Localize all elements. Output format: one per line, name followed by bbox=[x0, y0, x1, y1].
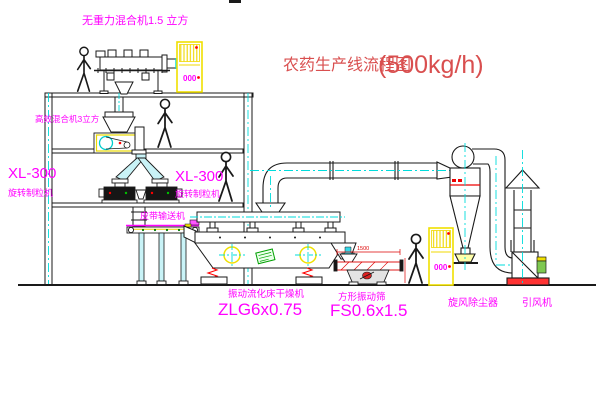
screen-dimension-label: 1500 bbox=[357, 246, 369, 252]
indicator-light bbox=[197, 76, 200, 79]
granulator-mid-name-label: 旋转制粒机 bbox=[175, 188, 220, 199]
drawing-title-capacity: (500kg/h) bbox=[378, 51, 484, 79]
clipped-artifact bbox=[229, 0, 241, 3]
indicator-light bbox=[195, 46, 198, 49]
indicator-light bbox=[447, 232, 450, 235]
gravity-mixer-label: 无重力混合机1.5 立方 bbox=[82, 13, 188, 27]
process-flow-diagram: 000 bbox=[0, 0, 600, 403]
control-cabinet-1: 000 bbox=[177, 42, 202, 92]
cabinet1-display: 000 bbox=[183, 74, 197, 83]
granulator-left-model-label: XL-300 bbox=[8, 165, 56, 182]
belt-conveyor-label: 皮带输送机 bbox=[140, 210, 185, 221]
granulator-mid-model-label: XL-300 bbox=[175, 168, 223, 185]
control-cabinet-2: 000 bbox=[429, 228, 453, 285]
cyclone-label: 旋风除尘器 bbox=[448, 296, 498, 309]
flow-diagram-canvas: 000 bbox=[0, 0, 600, 403]
granulator-left-name-label: 旋转制粒机 bbox=[8, 187, 53, 198]
cabinet2-display: 000 bbox=[434, 263, 448, 272]
high-mixer-label: 高效混合机3立方 bbox=[35, 114, 99, 124]
fan-label: 引风机 bbox=[522, 296, 552, 309]
screen-model-label: FS0.6x1.5 bbox=[330, 301, 408, 320]
indicator-light bbox=[448, 265, 451, 268]
dryer-model-label: ZLG6x0.75 bbox=[218, 300, 302, 319]
dryer-name-label: 振动流化床干燥机 bbox=[228, 288, 305, 300]
